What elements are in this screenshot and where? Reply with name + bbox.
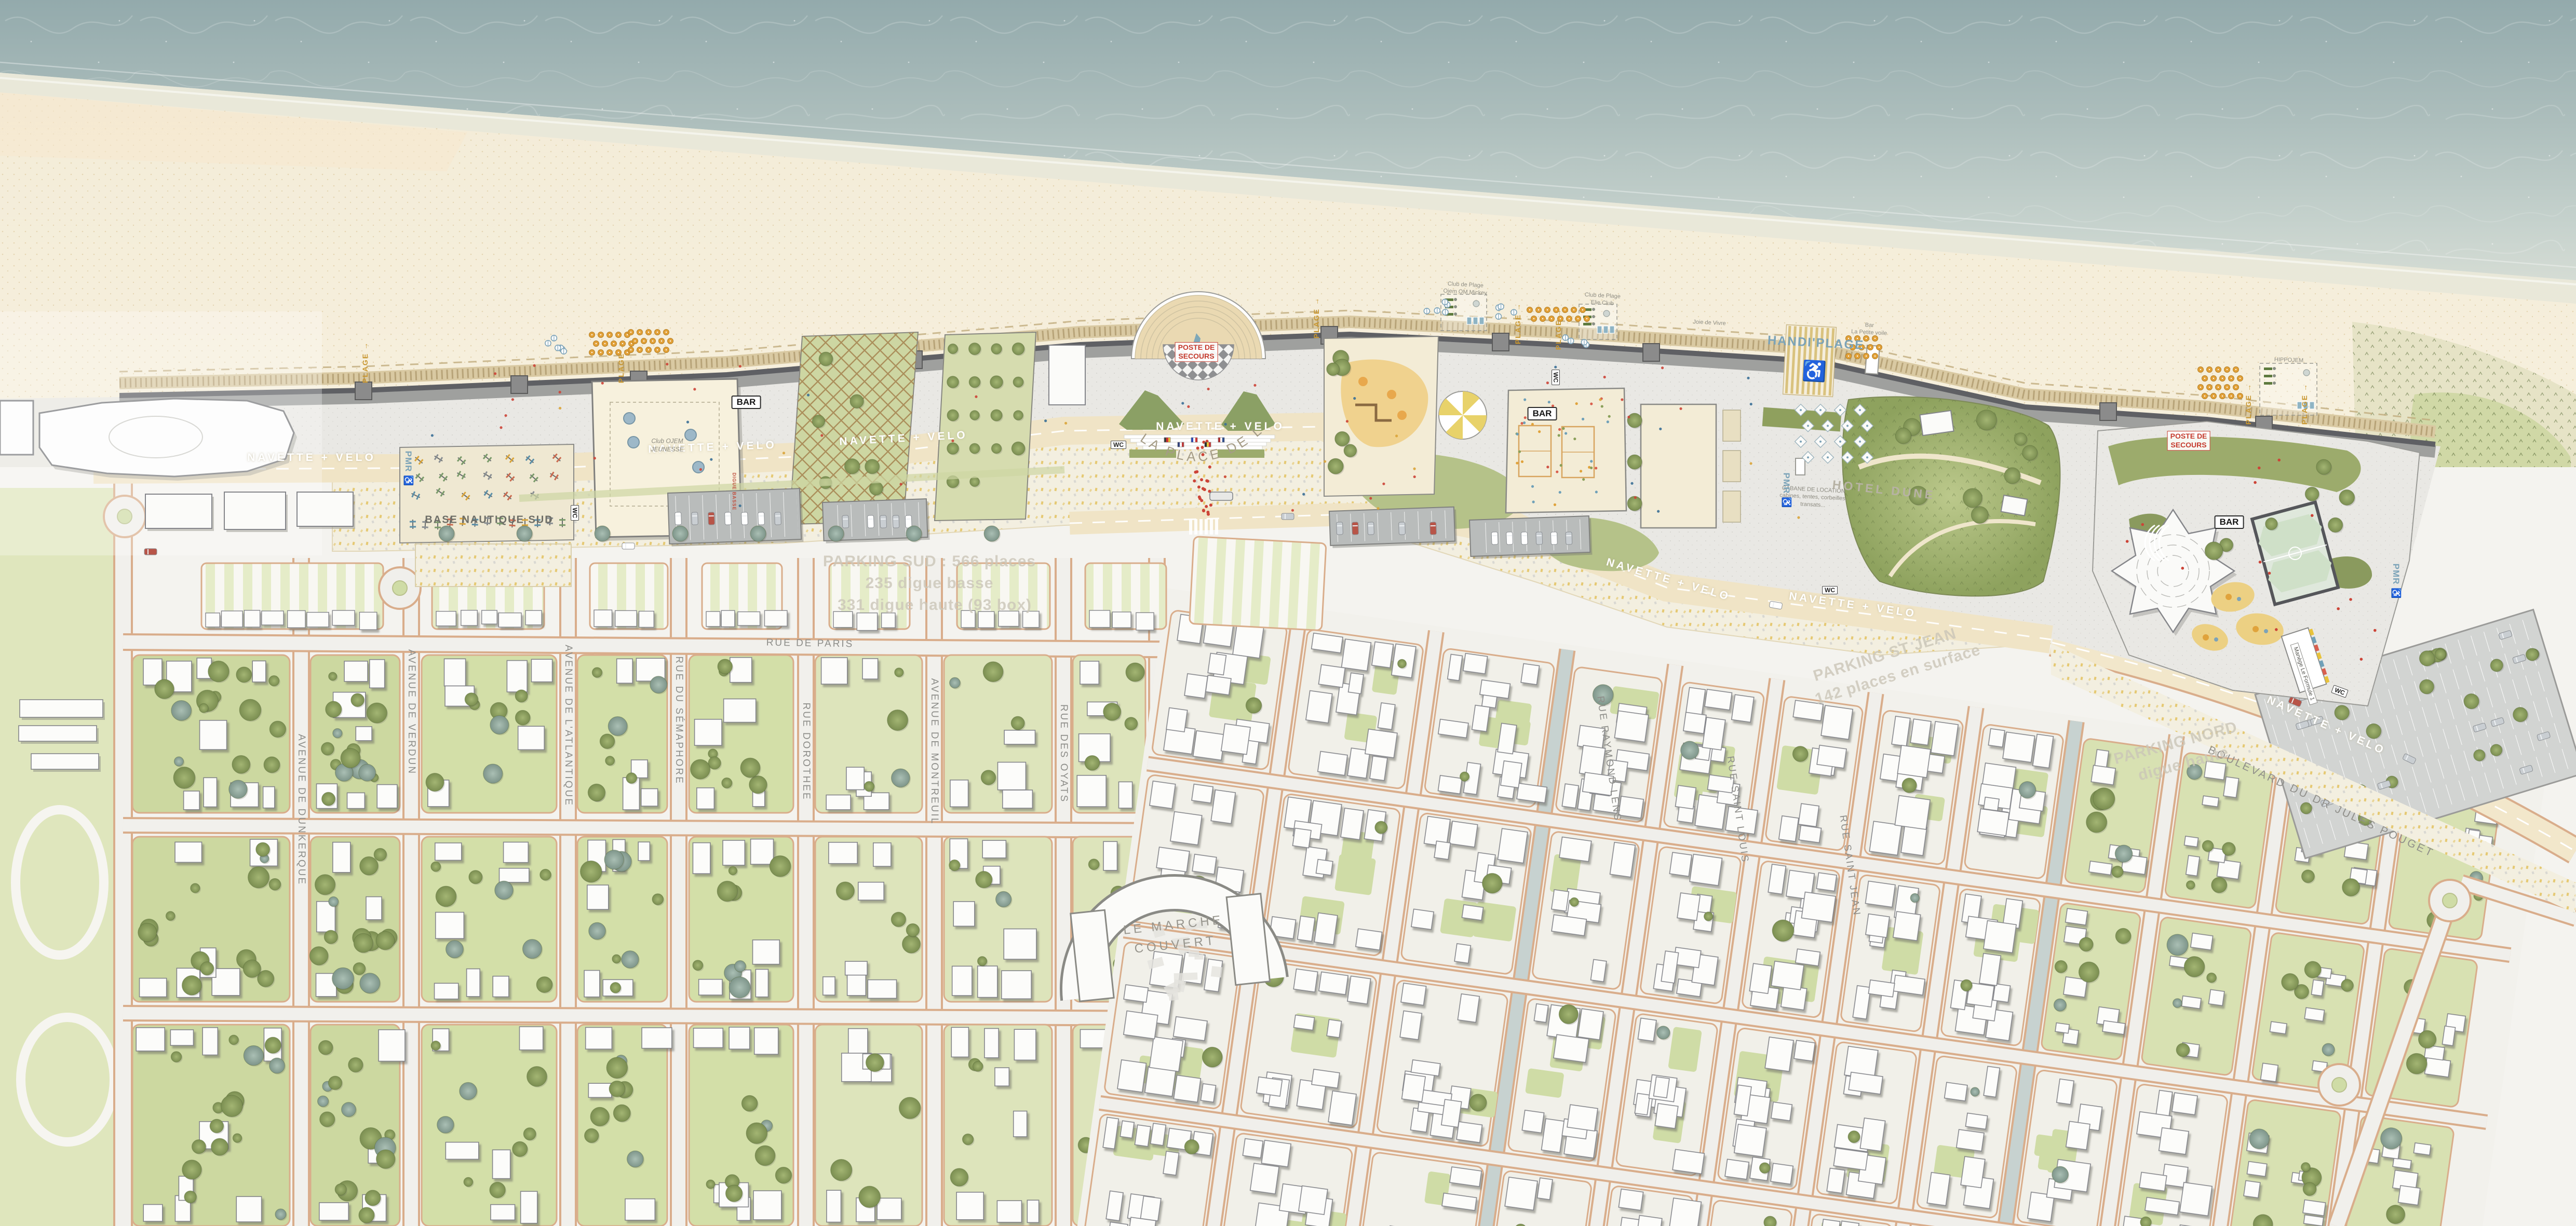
masterplan-canvas: LA PLACE DE L'EUROPE <box>0 0 2576 1226</box>
masterplan-map: LA PLACE DE L'EUROPE AVENUE DE DUNKERQUE… <box>0 0 2576 1226</box>
